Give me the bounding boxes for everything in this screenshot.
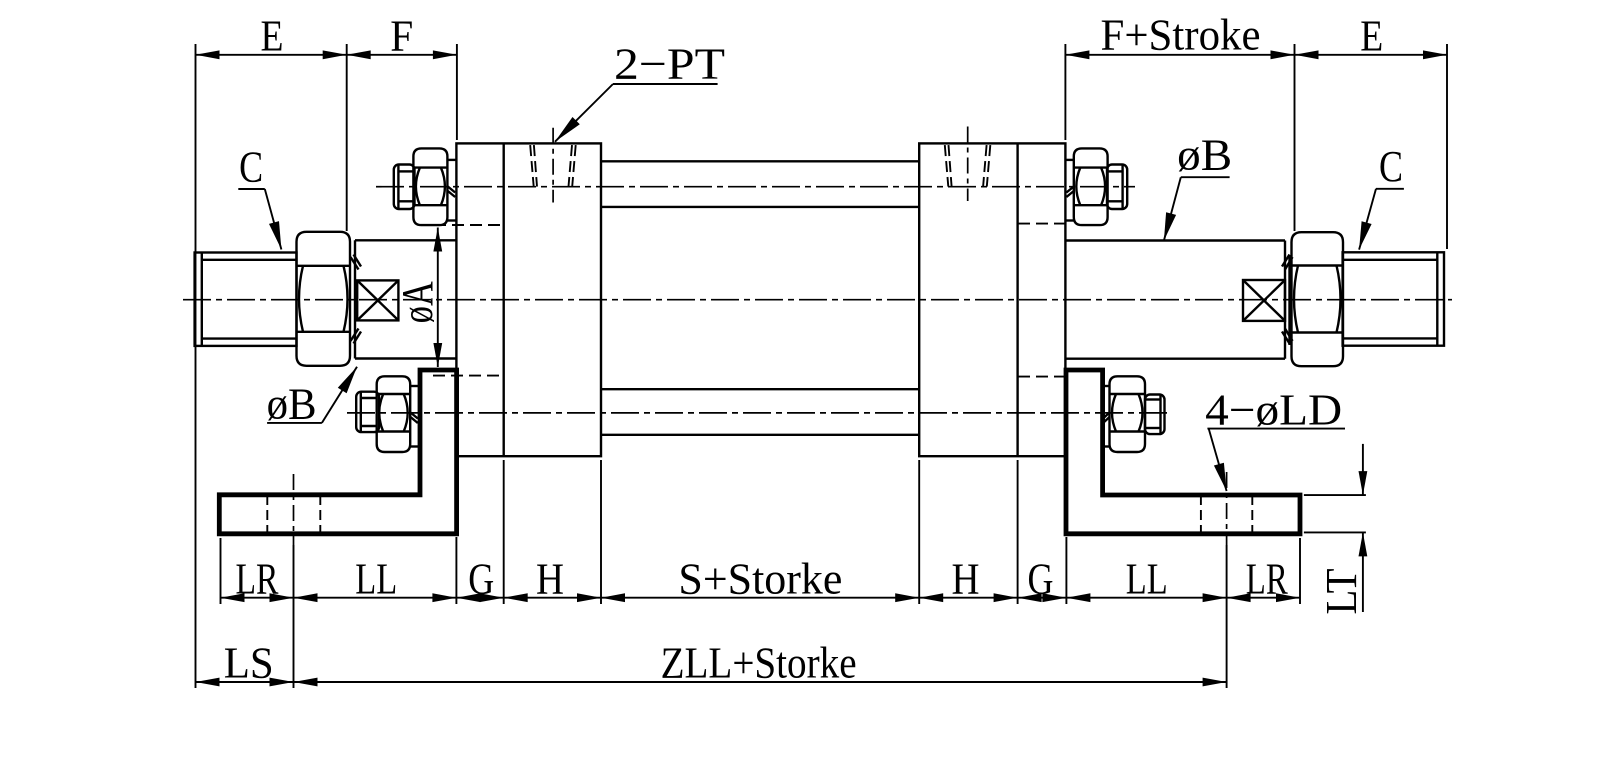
svg-text:E: E xyxy=(1360,12,1383,61)
svg-text:LL: LL xyxy=(355,554,397,603)
svg-text:LT: LT xyxy=(1317,568,1366,614)
svg-text:ZLL+Storke: ZLL+Storke xyxy=(661,639,857,688)
svg-text:F: F xyxy=(390,12,413,61)
svg-text:G: G xyxy=(468,554,494,603)
svg-text:2−PT: 2−PT xyxy=(614,39,725,88)
svg-text:LR: LR xyxy=(1246,554,1288,603)
svg-text:øB: øB xyxy=(267,380,317,429)
svg-text:G: G xyxy=(1028,554,1054,603)
svg-text:H: H xyxy=(952,554,980,603)
svg-text:C: C xyxy=(1379,142,1403,191)
svg-text:H: H xyxy=(536,554,564,603)
svg-text:S+Storke: S+Storke xyxy=(678,554,842,603)
svg-text:LS: LS xyxy=(224,639,274,688)
svg-text:E: E xyxy=(261,12,284,61)
svg-text:4−øLD: 4−øLD xyxy=(1205,386,1342,435)
svg-text:LR: LR xyxy=(236,554,279,603)
svg-text:C: C xyxy=(239,143,263,192)
svg-text:F+Stroke: F+Stroke xyxy=(1101,11,1261,60)
svg-text:LL: LL xyxy=(1126,554,1168,603)
svg-text:øA: øA xyxy=(393,281,442,323)
svg-text:øB: øB xyxy=(1177,131,1232,180)
